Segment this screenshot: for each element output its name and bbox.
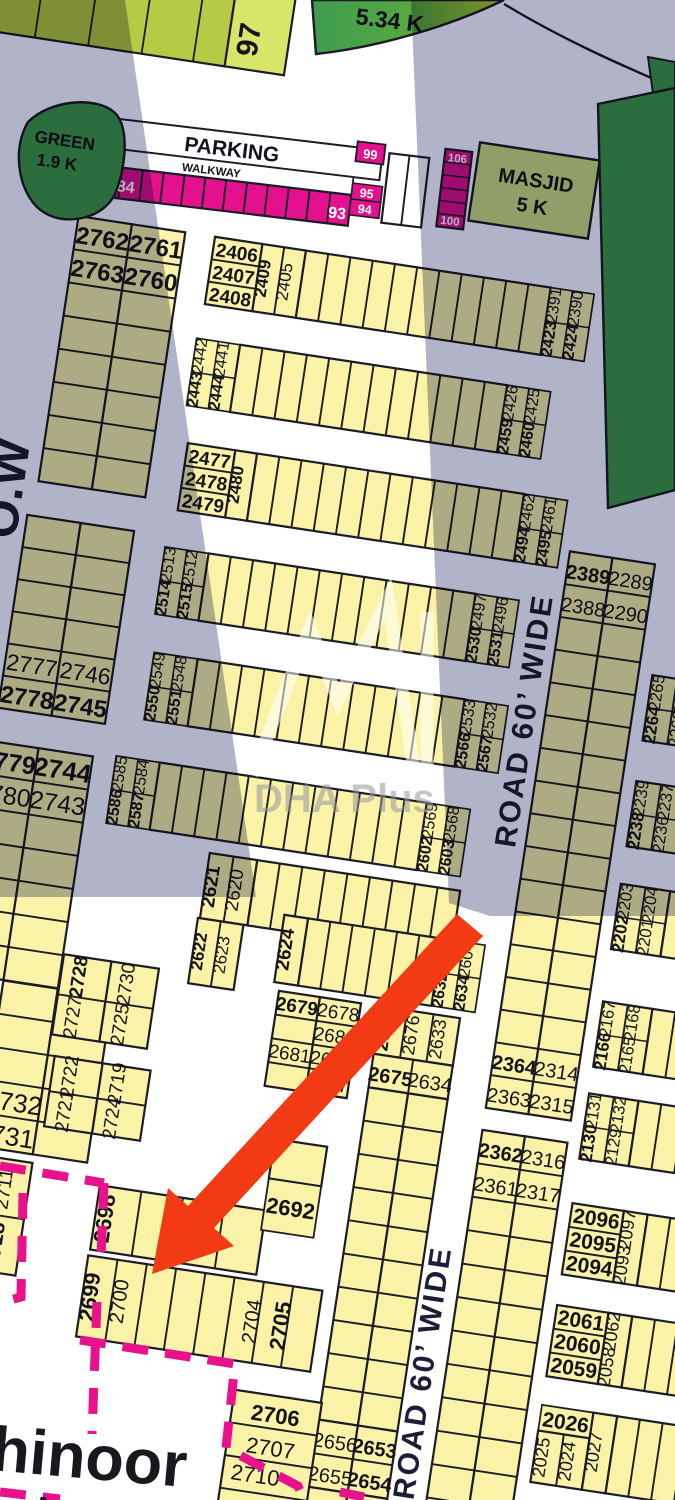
svg-text:95: 95 — [359, 186, 375, 202]
svg-text:DHA Plus: DHA Plus — [254, 777, 435, 821]
svg-text:97: 97 — [231, 21, 269, 59]
svg-text:93: 93 — [327, 204, 347, 223]
svg-text:99: 99 — [362, 146, 378, 163]
svg-text:94: 94 — [357, 202, 373, 218]
